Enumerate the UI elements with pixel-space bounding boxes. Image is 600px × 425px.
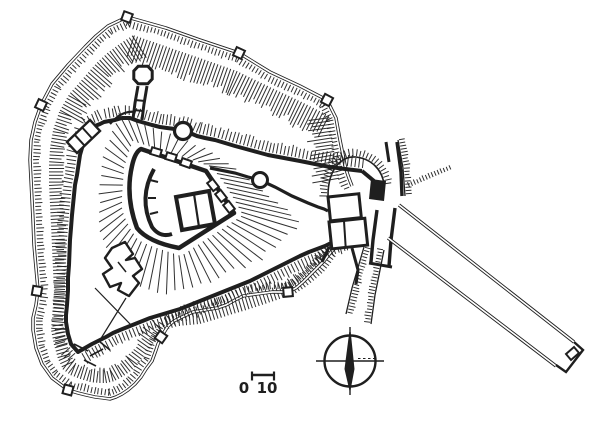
castle-core (129, 147, 234, 248)
gate-building (328, 194, 361, 221)
passage-rung (134, 110, 143, 111)
passage-wall (133, 86, 138, 119)
compass-rose-icon (316, 327, 384, 395)
causeway-wall (386, 142, 389, 162)
turret (62, 384, 73, 395)
gatehouse-ruin (103, 242, 142, 296)
scale-start-label: 0 (239, 379, 249, 397)
scale-bar: 0 10 (239, 372, 278, 398)
turret (321, 94, 333, 106)
gate-building (329, 218, 368, 249)
turret (283, 287, 293, 297)
watchtower (134, 66, 152, 84)
gate-tower (369, 179, 386, 201)
causeway-wall (389, 208, 395, 266)
stair-gate (67, 120, 100, 153)
turret (121, 11, 133, 23)
scale-end-label: 10 (257, 379, 278, 397)
causeway-road (388, 205, 583, 372)
passage-rung (135, 100, 145, 101)
causeway-wall (371, 210, 377, 262)
turret (32, 286, 42, 296)
castle-site-plan: 0 10 (0, 0, 600, 425)
castle-site-plan-page: 0 10 (0, 0, 600, 425)
round-tower (175, 123, 192, 140)
round-tower (253, 173, 268, 188)
compass-needle (345, 332, 355, 393)
